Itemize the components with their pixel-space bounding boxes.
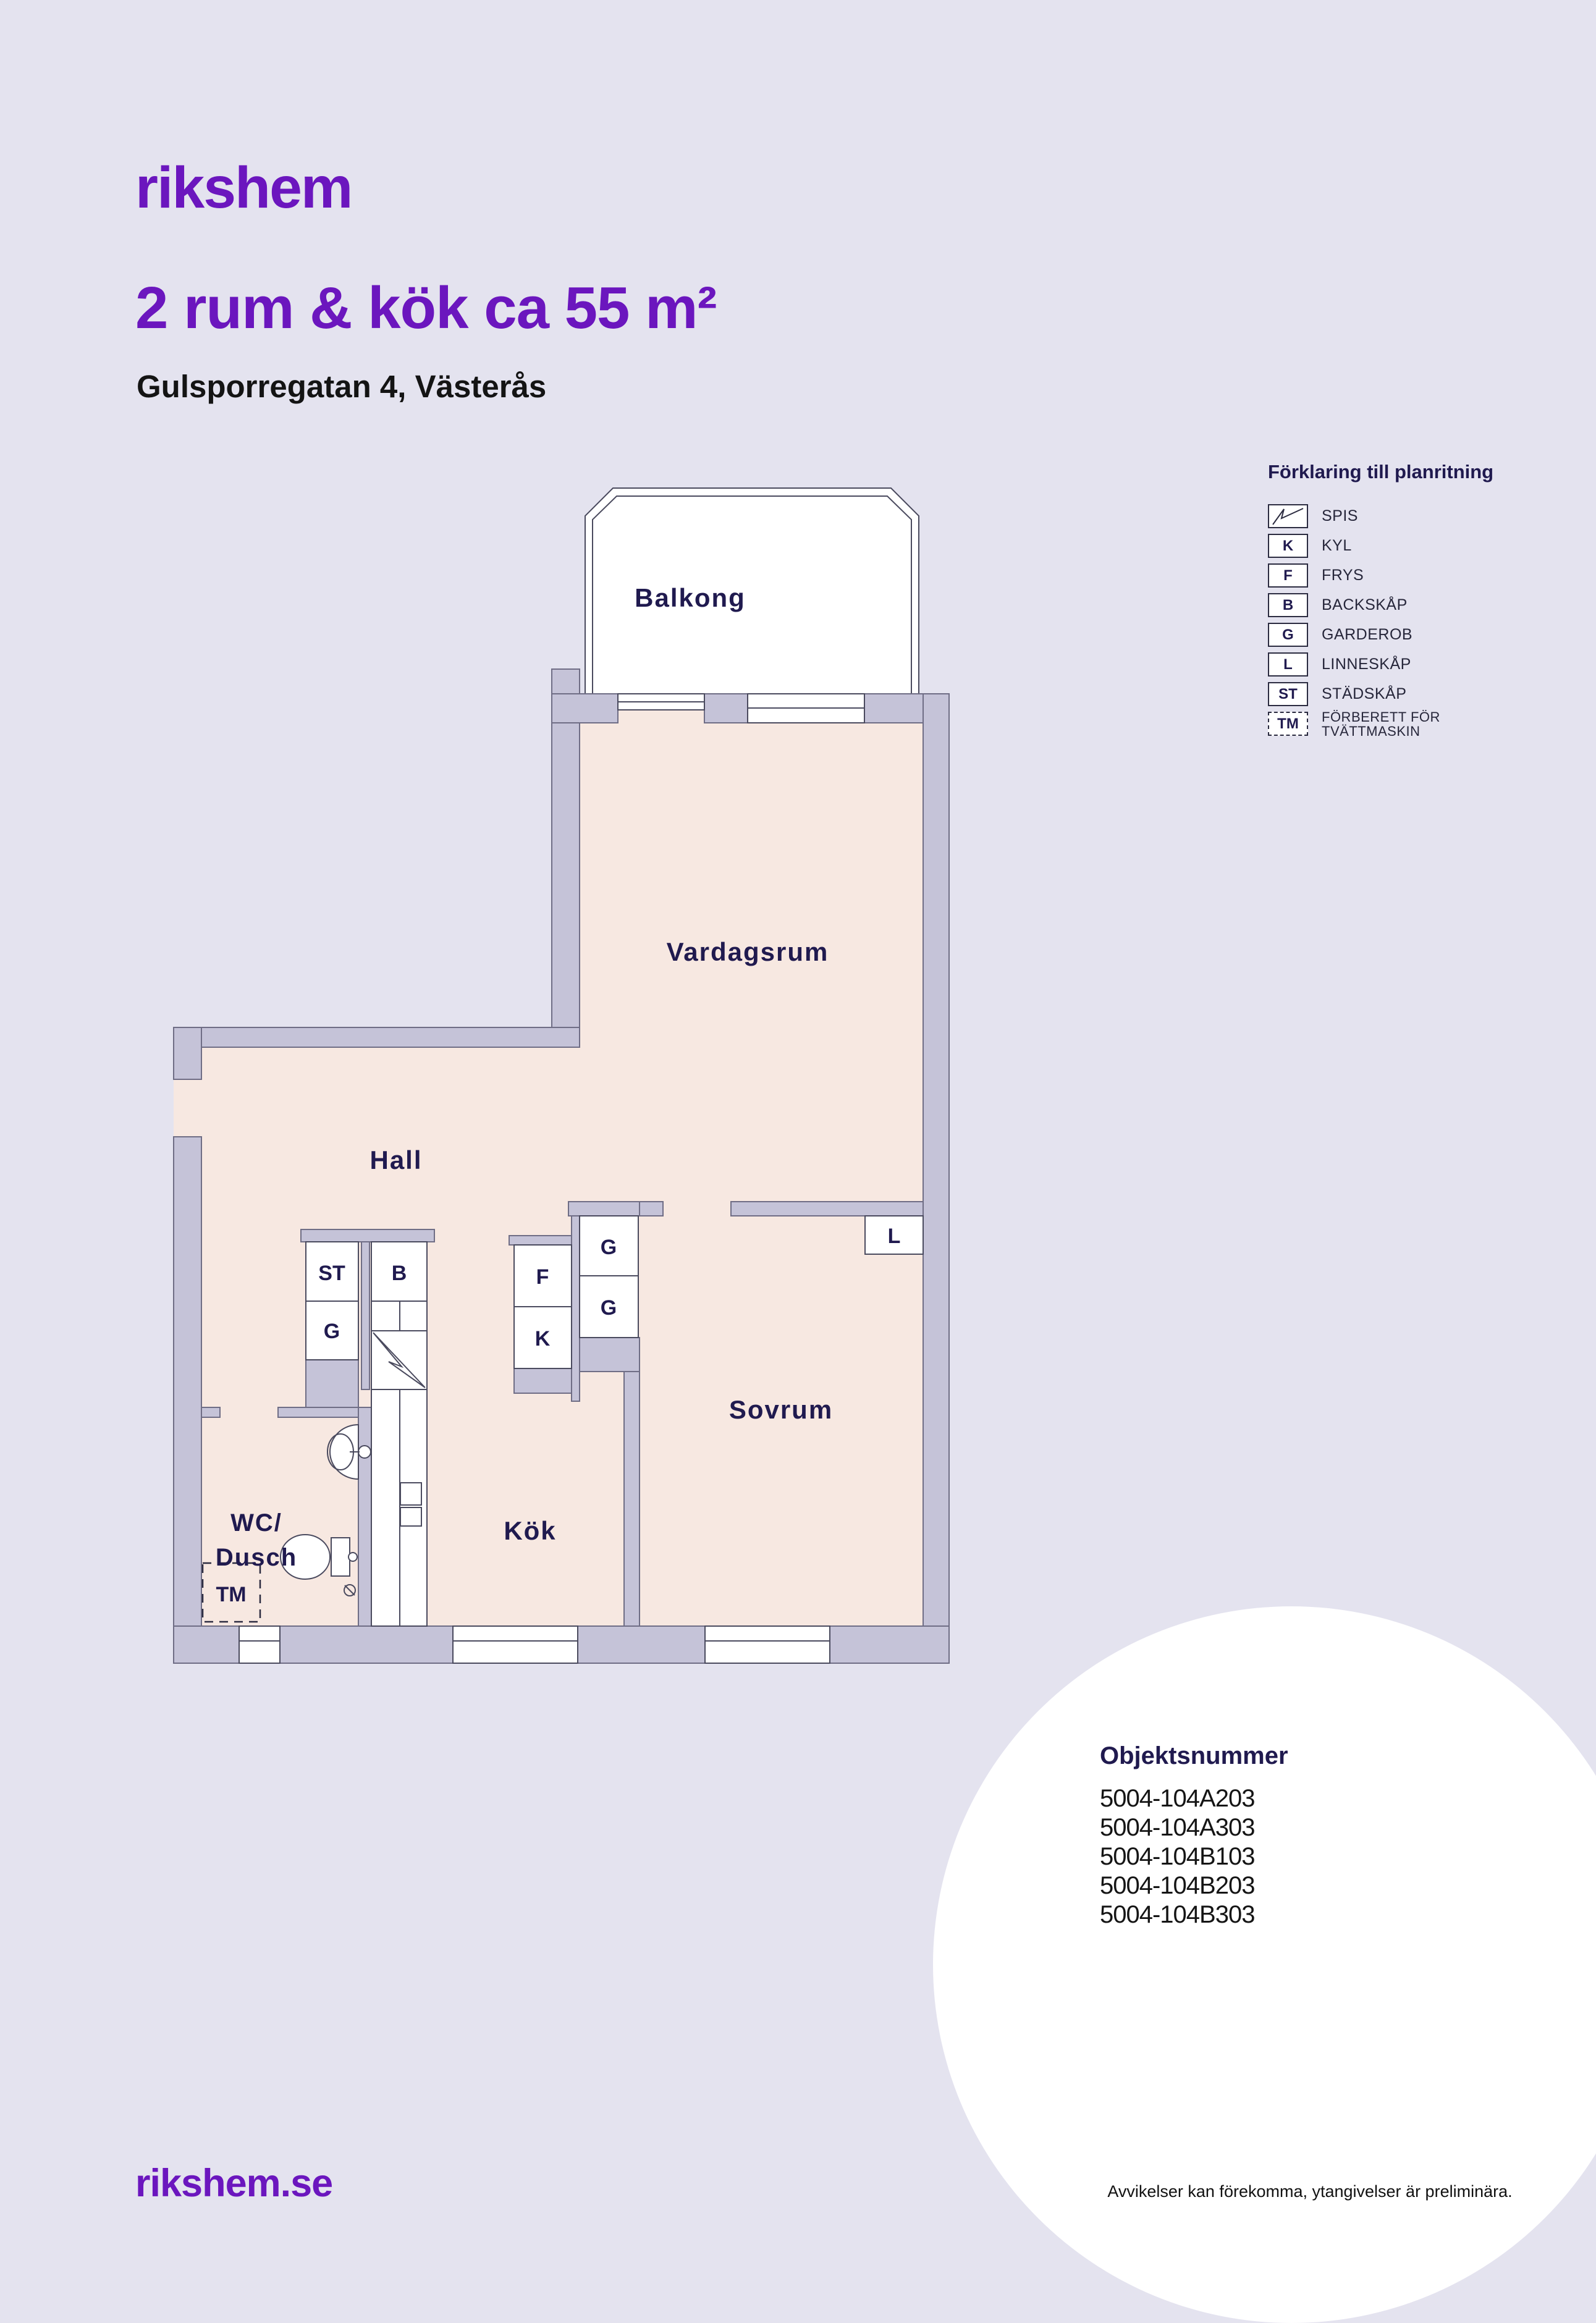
- label-f: F: [536, 1265, 549, 1289]
- kitchen-sink: [400, 1483, 421, 1505]
- legend-item-spis: SPIS: [1268, 504, 1440, 528]
- legend-label: STÄDSKÅP: [1322, 685, 1406, 703]
- legend-label: SPIS: [1322, 507, 1358, 525]
- legend-label: FÖRBERETT FÖR TVÄTTMASKIN: [1322, 710, 1440, 738]
- label-kok: Kök: [504, 1516, 556, 1545]
- legend-label-line2: TVÄTTMASKIN: [1322, 723, 1421, 739]
- spis-zigzag-icon: [1269, 505, 1307, 527]
- label-b: B: [392, 1262, 407, 1285]
- legend-item-tvattmaskin: TM FÖRBERETT FÖR TVÄTTMASKIN: [1268, 712, 1440, 736]
- spis-symbol-box: [1268, 504, 1308, 528]
- kyl-symbol-box: K: [1268, 534, 1308, 558]
- label-k: K: [535, 1327, 551, 1351]
- legend-item-linneskap: L LINNESKÅP: [1268, 652, 1440, 677]
- label-g-upper: G: [601, 1236, 617, 1259]
- objektsnummer-item: 5004-104B303: [1100, 1900, 1254, 1929]
- legend-item-backskap: B BACKSKÅP: [1268, 593, 1440, 617]
- label-g-hall: G: [324, 1320, 340, 1343]
- address-subtitle: Gulsporregatan 4, Västerås: [137, 368, 546, 405]
- legend-label: LINNESKÅP: [1322, 656, 1411, 673]
- stadskap-symbol-box: ST: [1268, 682, 1308, 706]
- label-wc-line1: WC/: [230, 1509, 282, 1537]
- floor-areas: [174, 710, 923, 1626]
- legend-label: FRYS: [1322, 567, 1364, 584]
- garderob-symbol-box: G: [1268, 623, 1308, 647]
- label-st: ST: [318, 1262, 345, 1285]
- disclaimer-text: Avvikelser kan förekomma, ytangivelser ä…: [1026, 2182, 1594, 2201]
- legend-item-kyl: K KYL: [1268, 534, 1440, 558]
- page: { "header": { "logo": "rikshem", "title"…: [0, 0, 1596, 2258]
- label-l: L: [888, 1225, 901, 1248]
- label-wc-line2: Dusch: [216, 1544, 297, 1571]
- backskap-symbol-box: B: [1268, 593, 1308, 617]
- objektsnummer-item: 5004-104B103: [1100, 1842, 1254, 1871]
- label-tm: TM: [216, 1583, 246, 1606]
- page-title: 2 rum & kök ca 55 m²: [135, 274, 716, 342]
- tvattmaskin-symbol-box: TM: [1268, 712, 1308, 736]
- legend-label: GARDEROB: [1322, 626, 1412, 644]
- background-circle: [933, 1606, 1596, 2323]
- label-balkong: Balkong: [635, 583, 746, 612]
- washbasin-faucet: [358, 1446, 371, 1458]
- objektsnummer-item: 5004-104B203: [1100, 1871, 1254, 1900]
- legend: SPIS K KYL F FRYS B BACKSKÅP G GARDEROB …: [1268, 504, 1440, 736]
- label-sovrum: Sovrum: [729, 1395, 833, 1424]
- objektsnummer-list: 5004-104A203 5004-104A303 5004-104B103 5…: [1100, 1784, 1254, 1929]
- objektsnummer-item: 5004-104A203: [1100, 1784, 1254, 1813]
- frys-symbol-box: F: [1268, 563, 1308, 588]
- linneskap-symbol-box: L: [1268, 652, 1308, 677]
- legend-label: BACKSKÅP: [1322, 596, 1408, 614]
- rikshem-website: rikshem.se: [135, 2161, 332, 2206]
- legend-item-garderob: G GARDEROB: [1268, 623, 1440, 647]
- legend-heading: Förklaring till planritning: [1268, 461, 1493, 483]
- objektsnummer-heading: Objektsnummer: [1100, 1742, 1288, 1770]
- legend-item-frys: F FRYS: [1268, 563, 1440, 588]
- floor-plan: Balkong Vardagsrum Hall Sovrum Kök WC/ D…: [148, 457, 970, 1687]
- label-hall: Hall: [369, 1145, 422, 1174]
- objektsnummer-item: 5004-104A303: [1100, 1813, 1254, 1842]
- legend-item-stadskap: ST STÄDSKÅP: [1268, 682, 1440, 706]
- toilet-tank: [331, 1538, 350, 1576]
- label-g-lower: G: [601, 1296, 617, 1320]
- legend-label-line1: FÖRBERETT FÖR: [1322, 709, 1440, 725]
- label-vardagsrum: Vardagsrum: [667, 937, 829, 966]
- rikshem-logo: rikshem: [135, 154, 352, 222]
- legend-label: KYL: [1322, 537, 1352, 555]
